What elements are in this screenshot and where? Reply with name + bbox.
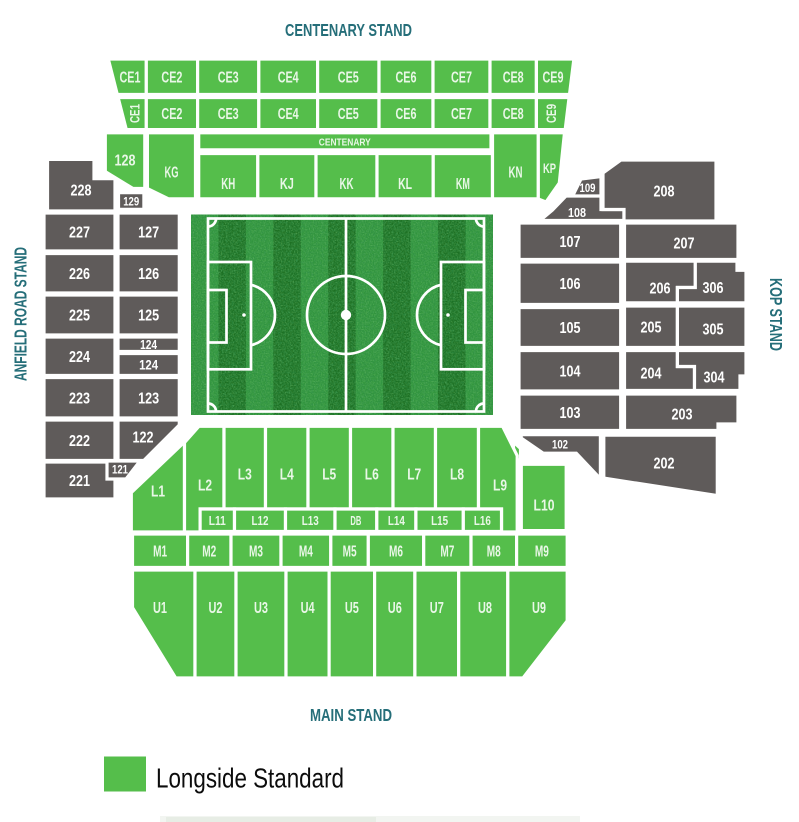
svg-text:123: 123	[138, 391, 159, 408]
svg-text:MAIN STAND: MAIN STAND	[310, 705, 392, 725]
svg-text:M1: M1	[153, 544, 167, 561]
svg-text:L1: L1	[151, 484, 165, 501]
svg-text:228: 228	[71, 183, 92, 200]
svg-text:M7: M7	[440, 544, 454, 561]
svg-text:102: 102	[552, 437, 568, 451]
svg-text:L2: L2	[198, 478, 212, 495]
svg-text:L3: L3	[238, 467, 252, 484]
svg-text:KJ: KJ	[280, 176, 294, 193]
svg-text:M9: M9	[535, 544, 549, 561]
svg-text:L4: L4	[280, 467, 294, 484]
svg-text:KOP STAND: KOP STAND	[766, 278, 786, 351]
svg-text:KM: KM	[456, 176, 470, 193]
svg-text:CE8: CE8	[503, 69, 524, 86]
svg-text:M8: M8	[487, 544, 501, 561]
svg-text:KK: KK	[340, 176, 355, 193]
svg-text:227: 227	[69, 225, 90, 242]
svg-text:CE2: CE2	[161, 106, 182, 123]
svg-text:CE5: CE5	[338, 69, 359, 86]
svg-text:CE1: CE1	[128, 104, 143, 123]
svg-text:222: 222	[69, 433, 90, 450]
svg-text:CE7: CE7	[451, 106, 472, 123]
svg-text:224: 224	[69, 349, 90, 366]
svg-text:KH: KH	[221, 176, 235, 193]
svg-text:106: 106	[560, 276, 581, 293]
svg-text:124: 124	[140, 338, 157, 352]
svg-text:122: 122	[133, 430, 154, 447]
svg-text:306: 306	[703, 280, 724, 297]
svg-text:U8: U8	[478, 600, 492, 617]
svg-text:CE7: CE7	[451, 69, 472, 86]
svg-text:L14: L14	[388, 514, 405, 528]
svg-text:KN: KN	[509, 165, 523, 182]
svg-text:M4: M4	[299, 544, 313, 561]
svg-text:U1: U1	[153, 600, 167, 617]
svg-text:ANFIELD ROAD STAND: ANFIELD ROAD STAND	[11, 247, 31, 381]
svg-text:CE3: CE3	[218, 106, 239, 123]
svg-text:202: 202	[654, 456, 675, 473]
svg-text:L15: L15	[431, 514, 448, 528]
svg-text:M2: M2	[202, 544, 216, 561]
svg-text:U2: U2	[209, 600, 223, 617]
svg-text:L10: L10	[534, 498, 555, 515]
svg-text:U3: U3	[254, 600, 268, 617]
svg-text:U5: U5	[345, 600, 359, 617]
svg-text:104: 104	[560, 363, 581, 380]
svg-text:CE4: CE4	[278, 106, 299, 123]
svg-text:126: 126	[138, 266, 159, 283]
svg-text:103: 103	[560, 405, 581, 422]
svg-text:CE2: CE2	[161, 69, 182, 86]
svg-text:128: 128	[115, 153, 136, 170]
svg-text:305: 305	[703, 322, 724, 339]
svg-text:CE6: CE6	[396, 69, 417, 86]
svg-text:CE5: CE5	[338, 106, 359, 123]
svg-text:CE8: CE8	[503, 106, 524, 123]
svg-text:CE4: CE4	[278, 69, 299, 86]
svg-text:206: 206	[650, 281, 671, 298]
svg-text:M5: M5	[343, 544, 357, 561]
svg-text:U7: U7	[430, 600, 444, 617]
svg-text:121: 121	[112, 465, 129, 477]
svg-text:CENTENARY: CENTENARY	[319, 136, 371, 148]
svg-text:M6: M6	[389, 544, 403, 561]
svg-text:105: 105	[560, 320, 581, 337]
svg-text:125: 125	[138, 308, 159, 325]
svg-text:225: 225	[69, 308, 90, 325]
svg-text:304: 304	[704, 370, 725, 387]
svg-text:129: 129	[123, 194, 139, 208]
svg-text:U6: U6	[388, 600, 402, 617]
svg-text:CENTENARY STAND: CENTENARY STAND	[285, 20, 412, 40]
svg-text:CE9: CE9	[544, 104, 559, 123]
svg-text:107: 107	[560, 234, 581, 251]
svg-text:L8: L8	[450, 467, 464, 484]
svg-text:L16: L16	[474, 514, 491, 528]
svg-text:L12: L12	[252, 514, 269, 528]
svg-text:KG: KG	[165, 165, 179, 182]
svg-text:CE9: CE9	[543, 69, 564, 86]
svg-text:CE1: CE1	[120, 69, 141, 86]
svg-text:109: 109	[580, 181, 596, 195]
svg-text:L11: L11	[209, 514, 226, 528]
svg-text:207: 207	[674, 236, 695, 253]
svg-text:223: 223	[69, 390, 90, 407]
svg-text:KP: KP	[543, 160, 556, 176]
svg-text:L9: L9	[493, 478, 507, 495]
svg-text:CE6: CE6	[396, 106, 417, 123]
svg-text:U4: U4	[301, 600, 315, 617]
svg-text:L7: L7	[407, 467, 421, 484]
svg-text:127: 127	[138, 225, 159, 242]
svg-text:226: 226	[69, 266, 90, 283]
svg-text:L13: L13	[302, 514, 319, 528]
svg-text:Longside Standard: Longside Standard	[156, 763, 344, 794]
svg-text:M3: M3	[249, 544, 263, 561]
svg-text:208: 208	[654, 184, 675, 201]
svg-text:L5: L5	[322, 467, 336, 484]
svg-text:U9: U9	[532, 600, 546, 617]
svg-text:203: 203	[672, 407, 693, 424]
svg-text:DB: DB	[350, 514, 361, 528]
svg-text:KL: KL	[398, 176, 412, 193]
svg-text:CE3: CE3	[218, 69, 239, 86]
svg-text:204: 204	[641, 366, 662, 383]
svg-text:108: 108	[568, 205, 586, 220]
svg-text:221: 221	[69, 473, 90, 490]
svg-text:L6: L6	[365, 467, 379, 484]
svg-text:124: 124	[139, 357, 158, 373]
svg-text:205: 205	[641, 320, 662, 337]
